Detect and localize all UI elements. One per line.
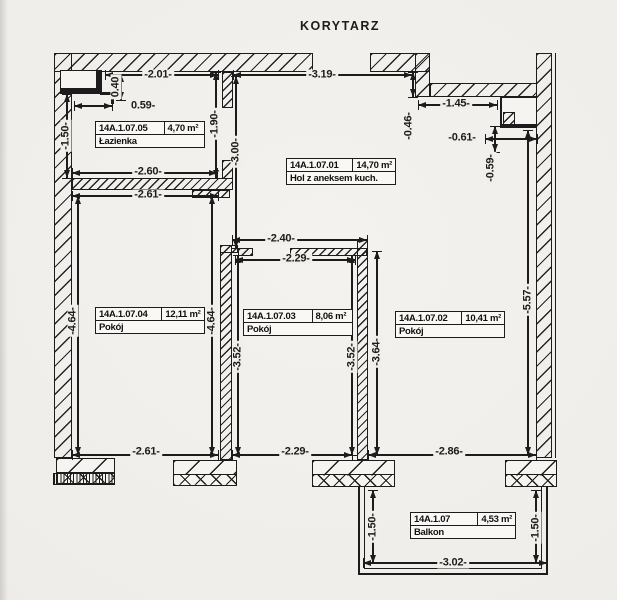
- wall-left: [54, 53, 72, 458]
- dimension-arrow: [64, 170, 70, 178]
- window-room02: [505, 460, 557, 487]
- wall-right-face-line: [555, 53, 556, 458]
- dimension-arrow: [363, 560, 371, 566]
- dimension-arrow: [370, 490, 376, 498]
- room-name: Łazienka: [96, 135, 204, 147]
- dimension-label: -2.61-: [130, 447, 162, 458]
- room-id: 14A.1.07.05: [96, 122, 165, 134]
- dimension-label: -3.52-: [347, 341, 358, 373]
- dimension-label: -3.52-: [233, 341, 244, 373]
- bathroom-niche: [60, 70, 98, 90]
- dimension-label: -2.29-: [280, 254, 312, 265]
- window-room04-right: [173, 460, 237, 486]
- dimension-label: -1.45-: [440, 99, 472, 110]
- dimension-arrow: [359, 237, 367, 243]
- wall-partition-room04: [220, 245, 232, 460]
- dimension-arrow: [72, 452, 80, 458]
- dimension-arrow: [489, 102, 497, 108]
- dimension-arrow: [349, 255, 355, 263]
- room-label-header: 14A.1.07.054,70 m²: [96, 122, 204, 135]
- dimension-label: -0.61-: [446, 133, 478, 144]
- dimension-label: -1.50-: [61, 120, 72, 152]
- dimension-arrow: [209, 196, 215, 204]
- room-label-header: 14A.1.074,53 m²: [411, 513, 515, 526]
- dimension-arrow: [213, 72, 219, 80]
- room-name: Hol z aneksem kuch.: [287, 172, 395, 184]
- scan-edge-shadow: [0, 0, 8, 600]
- dimension-label: -0.46-: [404, 110, 415, 142]
- window-mid-line: [313, 474, 394, 475]
- dimension-arrow: [528, 452, 536, 458]
- dimension-label: -2.60-: [132, 167, 164, 178]
- dimension-arrow: [232, 237, 240, 243]
- room-id: 14A.1.07: [411, 513, 478, 525]
- wall-entry-band: [430, 83, 537, 97]
- room-area: 12,11 m²: [162, 308, 204, 320]
- dimension-arrow: [374, 251, 380, 259]
- window-insulation: [53, 473, 115, 485]
- dimension-label: -2.40-: [265, 234, 297, 245]
- entry-shaft-hatch: [503, 112, 515, 125]
- room-label-header: 14A.1.07.0114,70 m²: [287, 159, 395, 172]
- room-label--azienka: 14A.1.07.054,70 m²Łazienka: [95, 121, 205, 148]
- dimension-arrow: [485, 136, 493, 142]
- wall-top-entry-step: [415, 53, 430, 97]
- dimension-label: -1.50-: [368, 511, 379, 543]
- wall-partition-room03: [357, 240, 368, 460]
- dimension-arrow: [539, 560, 547, 566]
- dimension-arrow: [75, 196, 81, 204]
- room-label-header: 14A.1.07.0210,41 m²: [396, 312, 504, 325]
- dimension-label: -3.00-: [231, 136, 242, 168]
- dimension-arrow: [418, 102, 426, 108]
- dimension-arrow: [64, 94, 70, 102]
- room-id: 14A.1.07.04: [96, 308, 162, 320]
- dimension-label: -4.64-: [68, 305, 79, 337]
- dimension-label: -1.90-: [210, 108, 221, 140]
- balcony-door-window: [312, 460, 395, 487]
- dimension-label: -0.59-: [486, 152, 497, 184]
- room-label-balkon: 14A.1.074,53 m²Balkon: [410, 512, 516, 539]
- room-label-pok-j: 14A.1.07.038,06 m²Pokój: [243, 309, 353, 336]
- dimension-label: -1.50-: [531, 512, 542, 544]
- room-label-header: 14A.1.07.0412,11 m²: [96, 308, 204, 321]
- dimension-arrow: [233, 76, 239, 84]
- dimension-label: 0.59-: [129, 101, 157, 112]
- room-label-pok-j: 14A.1.07.0210,41 m²Pokój: [395, 311, 505, 338]
- dimension-label: -2.86-: [433, 447, 465, 458]
- dimension-arrow: [344, 452, 352, 458]
- dimension-label: -2.01-: [142, 70, 174, 81]
- dimension-arrow: [210, 452, 218, 458]
- room-name: Pokój: [396, 325, 504, 337]
- dimension-line: [232, 239, 367, 240]
- dimension-arrow: [232, 452, 240, 458]
- room-area: 4,70 m²: [165, 122, 204, 134]
- dimension-arrow: [368, 452, 376, 458]
- dimension-arrow: [533, 490, 539, 498]
- room-name: Pokój: [244, 323, 352, 335]
- room-id: 14A.1.07.02: [396, 312, 462, 324]
- corridor-title: KORYTARZ: [285, 19, 395, 33]
- dimension-label: -3.02-: [437, 558, 469, 569]
- dimension-arrow: [492, 144, 498, 152]
- room-label-header: 14A.1.07.038,06 m²: [244, 310, 352, 323]
- wall-right: [536, 53, 552, 458]
- dimension-arrow: [235, 255, 241, 263]
- wall-bathroom-right-upper: [222, 72, 233, 108]
- floor-plan: KORYTARZ -2.01--3.19-0.400.59--1.50--1.9…: [0, 0, 617, 600]
- dimension-label: -3.19-: [306, 70, 338, 81]
- room-name: Balkon: [411, 526, 515, 538]
- dimension-arrow: [492, 126, 498, 134]
- dimension-arrow: [104, 103, 112, 109]
- room-id: 14A.1.07.01: [287, 159, 353, 171]
- dimension-arrow: [72, 170, 80, 176]
- room-label-hol-z-aneksem-kuch-: 14A.1.07.0114,70 m²Hol z aneksem kuch.: [286, 158, 396, 185]
- dimension-arrow: [74, 103, 82, 109]
- window-mid-line: [174, 474, 236, 475]
- room-name: Pokój: [96, 321, 204, 333]
- dimension-label: -2.61-: [132, 190, 164, 201]
- dimension-arrow: [410, 89, 416, 97]
- window-mid-line: [506, 474, 556, 475]
- dimension-arrow: [209, 170, 217, 176]
- room-area: 14,70 m²: [353, 159, 395, 171]
- dimension-label: -5.57-: [523, 284, 534, 316]
- room-area: 8,06 m²: [313, 310, 352, 322]
- dimension-label: -3.64-: [372, 336, 383, 368]
- dimension-label: 0.40: [111, 75, 122, 100]
- room-area: 10,41 m²: [462, 312, 504, 324]
- room-id: 14A.1.07.03: [244, 310, 313, 322]
- dimension-arrow: [410, 72, 416, 80]
- room-area: 4,53 m²: [478, 513, 515, 525]
- dimension-label: -2.29-: [279, 447, 311, 458]
- dimension-label: -4.64-: [207, 305, 218, 337]
- dimension-arrow: [525, 130, 531, 138]
- room-label-pok-j: 14A.1.07.0412,11 m²Pokój: [95, 307, 205, 334]
